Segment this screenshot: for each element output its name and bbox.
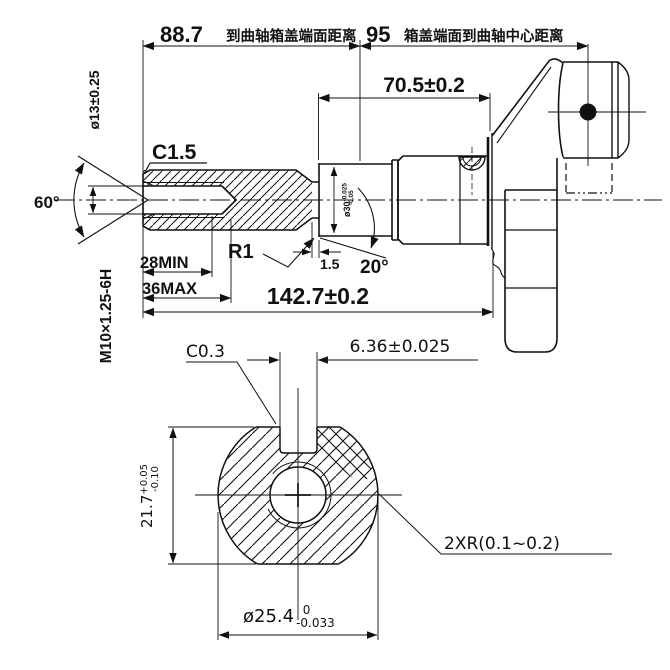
dim-95-note: 箱盖端面到曲轴中心距离 bbox=[404, 27, 564, 45]
angle-60-arc bbox=[74, 163, 84, 237]
section-center-cross bbox=[285, 483, 311, 507]
counterweight-slant-outer bbox=[492, 59, 563, 136]
keyway-slot bbox=[280, 427, 317, 453]
fillet-r1-label: R1 bbox=[228, 241, 254, 263]
dim-88-7-value: 88.7 bbox=[160, 22, 203, 47]
groove-width-label: 1.5 bbox=[320, 256, 340, 272]
angle-20-ref-line bbox=[320, 238, 386, 258]
thread-depth-min-label: 28MIN bbox=[140, 254, 189, 272]
keyway-chamfer-leader bbox=[186, 362, 276, 424]
section-view bbox=[195, 352, 402, 620]
dim-95-value: 95 bbox=[366, 22, 390, 47]
break-line bbox=[492, 250, 505, 278]
counterweight-slant-inner bbox=[497, 67, 551, 143]
thread-spec-label: M10×1.25-6H bbox=[98, 269, 115, 363]
dim-70-5-label: 70.5±0.2 bbox=[383, 74, 465, 97]
chamfer-label: C1.5 bbox=[152, 141, 197, 164]
fillet-r1-leader bbox=[263, 238, 314, 267]
angle-20-label: 20° bbox=[360, 257, 389, 278]
crankshaft-drawing-page: 88.7 到曲轴箱盖端面距离 95 箱盖端面到曲轴中心距离 70.5±0.2 C… bbox=[0, 0, 670, 670]
keyway-width-label: 6.36±0.025 bbox=[350, 337, 451, 357]
keyway-extension-lines bbox=[280, 352, 317, 427]
hidden-lines-vertical bbox=[566, 163, 612, 193]
countersink-dia-label: ø13±0.25 bbox=[86, 70, 102, 129]
crankpin-center-mark bbox=[580, 104, 597, 121]
thread-depth-max-label: 36MAX bbox=[142, 280, 197, 298]
keyway-chamfer-label: C0.3 bbox=[186, 342, 225, 362]
lower-counterweight-lines bbox=[505, 230, 557, 288]
crankshaft-drawing: 88.7 到曲轴箱盖端面距离 95 箱盖端面到曲轴中心距离 70.5±0.2 C… bbox=[0, 0, 670, 670]
journal-dia-label: ø30-0.025-0.05 bbox=[342, 183, 356, 217]
flat-fillets-label: 2XR(0.1~0.2) bbox=[444, 534, 560, 554]
angle-20-arc bbox=[358, 188, 374, 248]
crankpin-end-cap bbox=[612, 62, 629, 158]
lower-counterweight-outline bbox=[505, 190, 557, 352]
shaft-dia-label: ø25.4-0.0330 bbox=[243, 603, 335, 630]
dim-88-7-note: 到曲轴箱盖端面距离 bbox=[226, 27, 357, 45]
angle-60-label: 60° bbox=[34, 193, 60, 212]
across-flats-label: 21.7+0.05-0.10 bbox=[138, 464, 161, 528]
overall-length-label: 142.7±0.2 bbox=[267, 283, 369, 309]
